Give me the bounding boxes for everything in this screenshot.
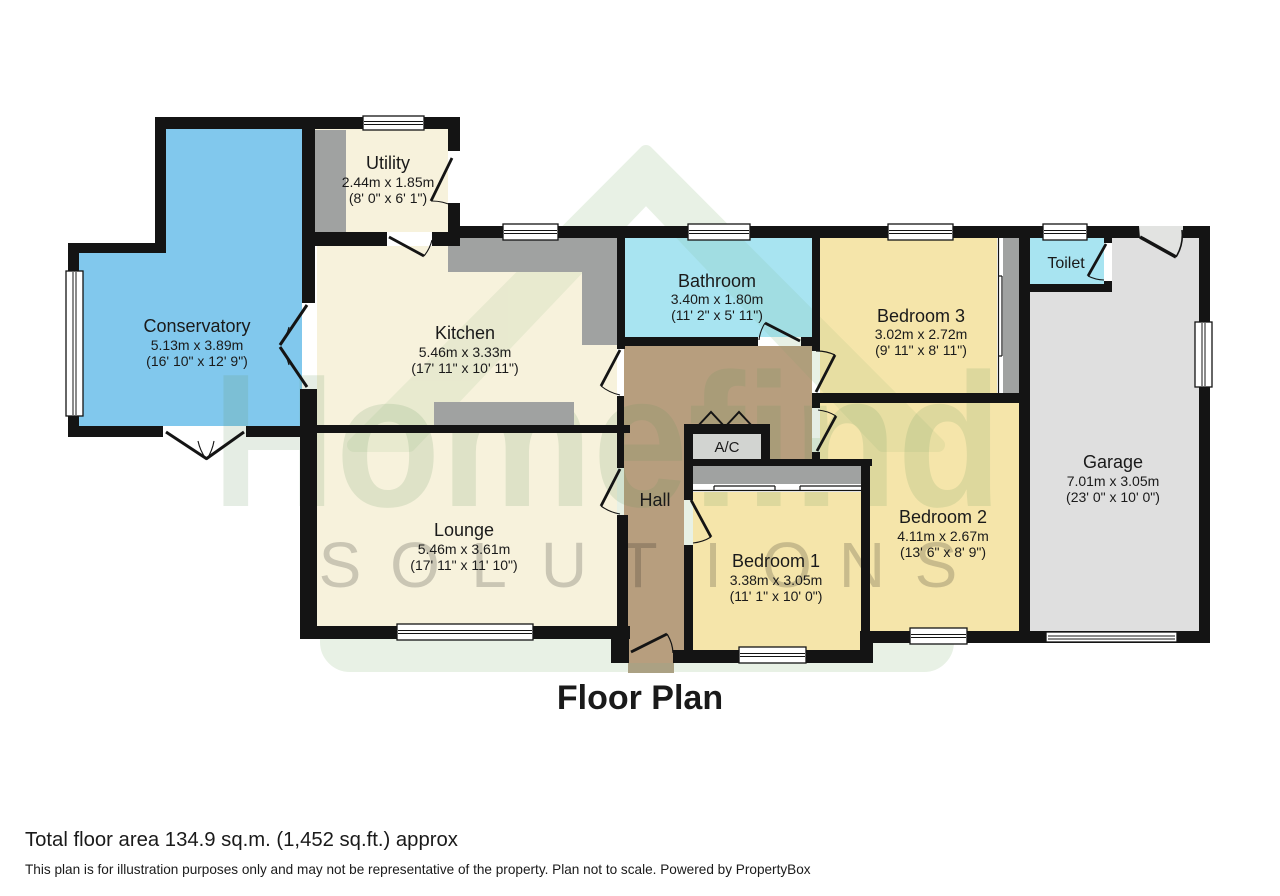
svg-text:Bedroom 3: Bedroom 3: [877, 306, 965, 326]
svg-text:Bedroom 2: Bedroom 2: [899, 507, 987, 527]
svg-text:Bathroom: Bathroom: [678, 271, 756, 291]
svg-text:Bedroom 1: Bedroom 1: [732, 551, 820, 571]
svg-text:(11' 1" x 10' 0"): (11' 1" x 10' 0"): [730, 588, 823, 604]
svg-text:7.01m x 3.05m: 7.01m x 3.05m: [1067, 473, 1160, 489]
svg-text:Hall: Hall: [639, 490, 670, 510]
svg-text:A/C: A/C: [714, 439, 739, 456]
svg-text:(17' 11" x 10' 11"): (17' 11" x 10' 11"): [411, 360, 518, 376]
svg-text:(11' 2" x 5' 11"): (11' 2" x 5' 11"): [671, 307, 763, 323]
svg-text:S: S: [319, 529, 362, 601]
svg-text:Floor Plan: Floor Plan: [557, 679, 723, 717]
svg-text:Kitchen: Kitchen: [435, 323, 495, 343]
svg-text:Toilet: Toilet: [1047, 255, 1085, 272]
svg-text:5.13m x 3.89m: 5.13m x 3.89m: [151, 337, 244, 353]
svg-text:Total floor area 134.9 sq.m. (: Total floor area 134.9 sq.m. (1,452 sq.f…: [25, 829, 458, 851]
svg-text:5.46m x 3.33m: 5.46m x 3.33m: [419, 344, 512, 360]
svg-text:3.02m x 2.72m: 3.02m x 2.72m: [875, 326, 968, 342]
svg-text:(17' 11" x 11' 10"): (17' 11" x 11' 10"): [410, 557, 517, 573]
svg-text:(13' 6" x 8' 9"): (13' 6" x 8' 9"): [900, 544, 986, 560]
svg-text:Garage: Garage: [1083, 452, 1143, 472]
svg-text:This plan is for illustration: This plan is for illustration purposes o…: [25, 862, 811, 877]
svg-text:Conservatory: Conservatory: [143, 316, 250, 336]
svg-text:5.46m x 3.61m: 5.46m x 3.61m: [418, 541, 511, 557]
svg-text:(9' 11" x 8' 11"): (9' 11" x 8' 11"): [875, 342, 967, 358]
svg-text:(16' 10" x 12' 9"): (16' 10" x 12' 9"): [146, 353, 248, 369]
svg-text:2.44m x 1.85m: 2.44m x 1.85m: [342, 174, 435, 190]
svg-text:Homefind: Homefind: [212, 335, 1002, 547]
svg-text:U: U: [541, 529, 587, 601]
svg-text:(23' 0" x 10' 0"): (23' 0" x 10' 0"): [1066, 489, 1160, 505]
svg-text:Lounge: Lounge: [434, 520, 494, 540]
svg-text:3.38m x 3.05m: 3.38m x 3.05m: [730, 572, 823, 588]
svg-text:3.40m x 1.80m: 3.40m x 1.80m: [671, 291, 764, 307]
svg-text:Utility: Utility: [366, 153, 410, 173]
svg-text:(8' 0" x 6' 1"): (8' 0" x 6' 1"): [349, 190, 427, 206]
svg-text:4.11m x 2.67m: 4.11m x 2.67m: [897, 528, 989, 544]
